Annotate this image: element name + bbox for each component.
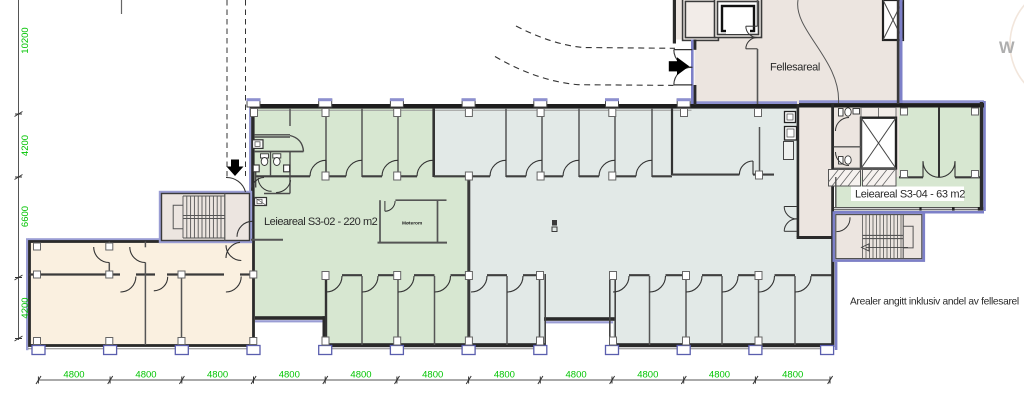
svg-text:4800: 4800 [207,370,228,381]
svg-text:10200: 10200 [20,27,31,53]
svg-text:4800: 4800 [279,370,300,381]
svg-text:Leieareal S3-04 - 63 m2: Leieareal S3-04 - 63 m2 [855,189,965,201]
svg-text:Møterom: Møterom [402,220,422,226]
svg-text:4800: 4800 [637,370,658,381]
svg-text:4800: 4800 [566,370,587,381]
svg-text:4800: 4800 [494,370,515,381]
svg-text:Fellesareal: Fellesareal [770,62,820,74]
svg-text:W: W [999,39,1015,57]
svg-text:Leieareal S3-02 - 220 m2: Leieareal S3-02 - 220 m2 [264,216,378,228]
svg-text:4200: 4200 [20,297,31,318]
svg-text:4800: 4800 [135,370,156,381]
svg-text:4800: 4800 [63,370,84,381]
svg-text:4800: 4800 [350,370,371,381]
svg-text:4800: 4800 [782,370,803,381]
svg-text:6600: 6600 [20,206,31,227]
svg-text:4800: 4800 [422,370,443,381]
svg-text:Arealer angitt inklusiv andel: Arealer angitt inklusiv andel av fellesa… [850,297,1019,308]
svg-text:4800: 4800 [709,370,730,381]
svg-text:4200: 4200 [20,135,31,156]
